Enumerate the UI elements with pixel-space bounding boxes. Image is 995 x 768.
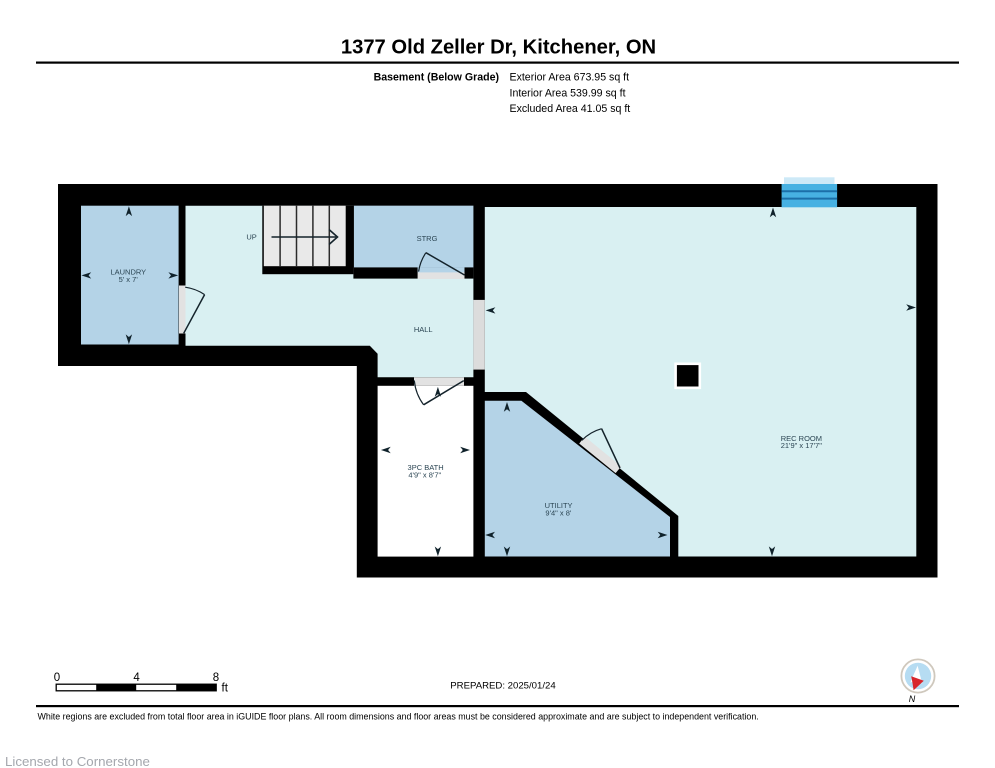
- svg-text:Basement (Below Grade): Basement (Below Grade): [374, 72, 499, 84]
- svg-text:STRG: STRG: [417, 234, 438, 243]
- svg-text:Exterior Area 673.95 sq ft: Exterior Area 673.95 sq ft: [510, 72, 630, 84]
- svg-text:HALL: HALL: [414, 325, 433, 334]
- svg-text:4: 4: [133, 672, 140, 684]
- svg-text:21'9" x 17'7": 21'9" x 17'7": [781, 441, 822, 450]
- svg-text:4'9" x 8'7": 4'9" x 8'7": [408, 470, 441, 479]
- svg-text:UP: UP: [246, 233, 256, 242]
- svg-text:9'4" x 8': 9'4" x 8': [545, 508, 572, 517]
- svg-text:Licensed to Cornerstone: Licensed to Cornerstone: [5, 754, 150, 768]
- svg-text:8: 8: [213, 672, 219, 684]
- svg-text:5' x 7': 5' x 7': [119, 275, 139, 284]
- svg-text:Excluded Area 41.05 sq ft: Excluded Area 41.05 sq ft: [510, 103, 631, 115]
- svg-text:1377 Old Zeller Dr, Kitchener,: 1377 Old Zeller Dr, Kitchener, ON: [341, 36, 656, 58]
- svg-text:PREPARED: 2025/01/24: PREPARED: 2025/01/24: [450, 681, 556, 692]
- svg-text:Interior Area 539.99 sq ft: Interior Area 539.99 sq ft: [510, 87, 626, 99]
- svg-text:N: N: [909, 694, 916, 704]
- svg-text:White regions are excluded fro: White regions are excluded from total fl…: [38, 712, 759, 722]
- svg-text:ft: ft: [222, 683, 229, 695]
- svg-text:0: 0: [54, 672, 60, 684]
